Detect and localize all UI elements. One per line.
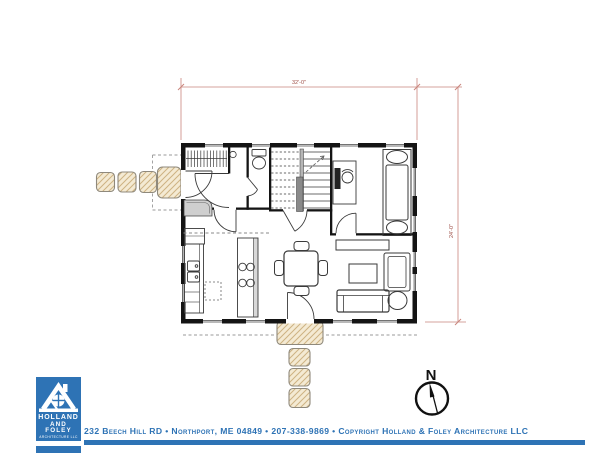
dining-chair bbox=[294, 287, 309, 296]
mudroom-bench bbox=[184, 200, 212, 216]
dining-chair bbox=[294, 242, 309, 251]
footer-address-line: 232 Beech Hill RD • Northport, ME 04849 … bbox=[84, 426, 588, 436]
dimension-right-label: 24'-0" bbox=[449, 224, 455, 238]
roof-overhang-dashed-lines bbox=[153, 155, 418, 335]
closet-hangers bbox=[186, 151, 227, 168]
staircase bbox=[271, 149, 330, 212]
footer-rule-bar bbox=[84, 440, 585, 445]
dining-chair bbox=[319, 261, 328, 276]
kitchen-door bbox=[214, 210, 236, 232]
daybed bbox=[383, 150, 411, 236]
house-icon bbox=[36, 377, 81, 414]
pillow bbox=[387, 221, 408, 234]
north-compass-icon: N bbox=[416, 367, 448, 415]
drawing-sheet: 32'-0" 24'-0" N HOLLAND AND FOLEY ARCHIT… bbox=[0, 0, 600, 470]
stepping-stones-left bbox=[97, 167, 182, 198]
firm-logo: HOLLAND AND FOLEY ARCHITECTURE LLC bbox=[36, 377, 81, 441]
living-room-furniture bbox=[336, 240, 410, 312]
dimension-top bbox=[178, 78, 462, 140]
dimension-right bbox=[425, 84, 466, 325]
kitchen-island bbox=[238, 238, 259, 317]
dining-set bbox=[275, 242, 328, 296]
coffee-table bbox=[349, 264, 377, 283]
ottoman bbox=[388, 292, 407, 310]
toilet bbox=[252, 150, 266, 170]
stair-rail bbox=[297, 177, 304, 212]
dining-chair bbox=[275, 261, 284, 276]
bottom-entry-door bbox=[288, 293, 315, 320]
desk-area bbox=[333, 161, 356, 204]
media-console bbox=[336, 240, 389, 250]
entry-landing-bottom bbox=[277, 322, 323, 345]
hall-door bbox=[283, 210, 307, 231]
dining-table bbox=[284, 251, 318, 286]
sofa bbox=[337, 290, 389, 312]
bedroom-door bbox=[336, 213, 356, 233]
left-entry-door bbox=[186, 171, 213, 198]
stair-up-arrow bbox=[306, 156, 324, 172]
kitchen-sink bbox=[188, 261, 200, 282]
logo-base-strip bbox=[36, 446, 81, 453]
cooktop-burners bbox=[239, 263, 255, 287]
bottom-entry-opening bbox=[286, 319, 314, 324]
left-entry-opening bbox=[181, 170, 186, 199]
dimension-top-label: 32'-0" bbox=[292, 80, 306, 86]
desk-chair bbox=[342, 172, 353, 183]
bathroom-door bbox=[248, 178, 258, 197]
monitor bbox=[335, 168, 341, 189]
kitchen bbox=[185, 229, 259, 318]
floor-plan-drawing: 32'-0" 24'-0" N bbox=[0, 0, 600, 470]
logo-line2: AND FOLEY bbox=[36, 422, 81, 436]
ceiling-light bbox=[230, 151, 236, 157]
dishwasher bbox=[205, 282, 221, 300]
pillow bbox=[387, 151, 408, 164]
stepping-stones-bottom bbox=[277, 322, 323, 408]
entry-landing-left bbox=[158, 167, 182, 198]
logo-line3: ARCHITECTURE LLC bbox=[36, 436, 81, 440]
